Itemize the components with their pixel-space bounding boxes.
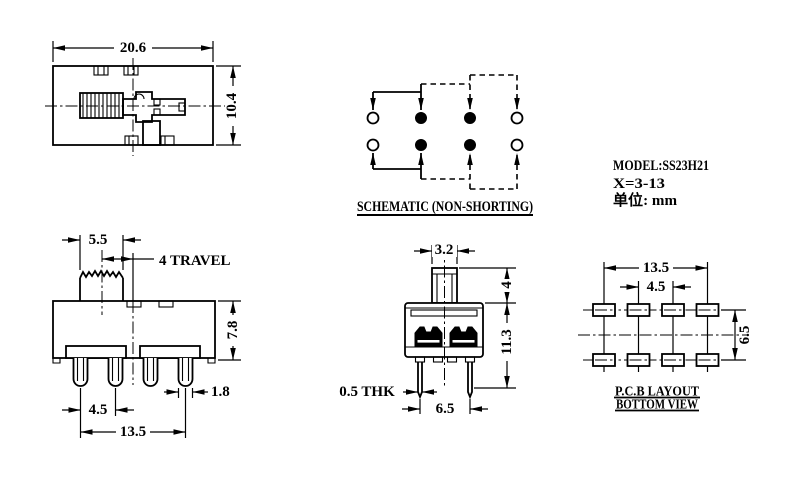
side-view-left-leg bbox=[418, 362, 422, 397]
unit-note: 单位: mm bbox=[613, 191, 677, 209]
dim-side-leg-pitch-text: 6.5 bbox=[436, 401, 455, 417]
side-view: 3.2 4 11.3 0.5 THK 6.5 bbox=[339, 242, 516, 417]
dim-side-leg-pitch: 6.5 bbox=[402, 399, 488, 417]
dim-front-height-text: 7.8 bbox=[225, 321, 241, 340]
dim-top-height-text: 10.4 bbox=[224, 92, 240, 119]
dim-front-knob-width-text: 5.5 bbox=[89, 232, 108, 248]
dim-side-knob-height: 4 bbox=[459, 268, 516, 303]
dim-front-pin-pitch-text: 4.5 bbox=[89, 402, 108, 418]
model-info-block: MODEL:SS23H21 X=3-13 单位: mm bbox=[613, 158, 709, 209]
dim-top-width-text: 20.6 bbox=[120, 40, 147, 56]
dim-front-pin-span-text: 13.5 bbox=[120, 424, 146, 440]
technical-drawing-sheet: 20.6 10.4 bbox=[0, 0, 800, 480]
dim-front-height: 7.8 bbox=[218, 301, 241, 360]
dim-front-travel-text: 4 TRAVEL bbox=[159, 253, 231, 269]
dim-pcb-pad-span: 13.5 bbox=[604, 260, 708, 276]
schematic-title: SCHEMATIC (NON-SHORTING) bbox=[357, 199, 533, 215]
model-number: MODEL:SS23H21 bbox=[613, 158, 709, 174]
dim-front-pin-width-text: 1.8 bbox=[211, 384, 230, 400]
dim-pcb-pad-pitch-text: 4.5 bbox=[647, 279, 666, 295]
dim-pcb-pad-pitch: 4.5 bbox=[620, 279, 691, 295]
pcb-title-line2: BOTTOM VIEW bbox=[616, 397, 698, 412]
drawing-canvas: 20.6 10.4 bbox=[0, 0, 800, 480]
schematic-terminals bbox=[368, 113, 523, 151]
dim-side-knob-height-text: 4 bbox=[499, 281, 515, 289]
dim-pcb-pad-span-text: 13.5 bbox=[643, 260, 669, 276]
dim-side-thickness-text: 0.5 THK bbox=[339, 384, 395, 400]
pcb-layout-view: 13.5 4.5 6.5 P.C.B LAYOUT BOTTOM VIEW bbox=[578, 260, 753, 412]
top-view: 20.6 10.4 bbox=[45, 40, 241, 156]
dim-side-height-text: 11.3 bbox=[499, 329, 515, 354]
schematic-view: SCHEMATIC (NON-SHORTING) bbox=[357, 75, 533, 215]
front-view: 5.5 4 TRAVEL 7.8 1.8 4.5 bbox=[53, 232, 241, 440]
side-view-right-leg bbox=[468, 362, 472, 397]
dim-front-travel: 4 TRAVEL bbox=[102, 253, 231, 269]
dim-pcb-row-pitch-text: 6.5 bbox=[737, 326, 753, 345]
dim-side-knob-width-text: 3.2 bbox=[435, 242, 454, 258]
dim-front-pin-width: 1.8 bbox=[164, 384, 230, 400]
model-variant-range: X=3-13 bbox=[613, 176, 665, 192]
